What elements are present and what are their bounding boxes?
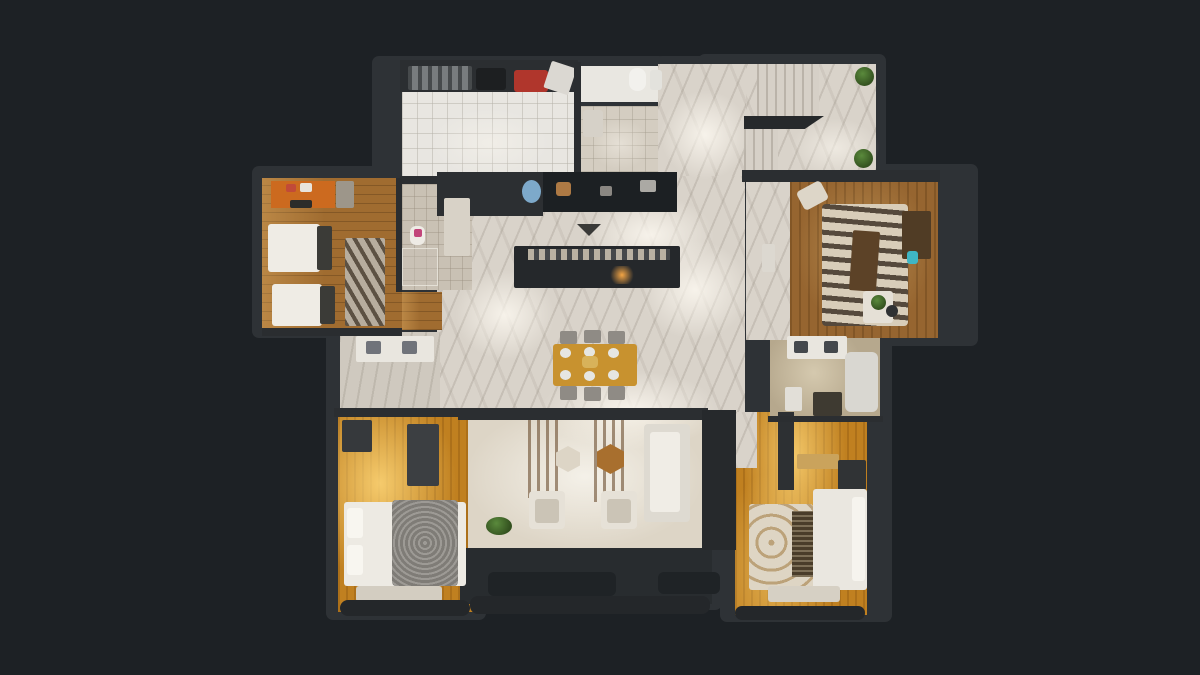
right-bath-washer — [785, 387, 802, 411]
left-bedroom-door-nook — [402, 292, 442, 330]
kitchen-kettle — [476, 68, 506, 90]
utility-washer — [583, 110, 603, 137]
fireplace-glow — [608, 266, 636, 284]
kids-desk-item-white — [300, 183, 312, 192]
study-table-plant — [871, 295, 886, 310]
right-bath-mat — [813, 392, 842, 416]
kids-bed-1-frame — [317, 226, 332, 270]
kids-crib — [336, 181, 354, 208]
left-bath-vanity — [444, 198, 470, 256]
kitchen-floor — [402, 88, 578, 178]
wall-right-bath-south — [768, 416, 883, 422]
display-reflection-warm — [556, 182, 571, 196]
kids-bed-2-frame — [320, 286, 335, 324]
armchair-1-seat — [535, 499, 559, 523]
blue-balloon — [522, 180, 541, 203]
entry-plant-upper — [855, 67, 874, 86]
dining-chair-north-1 — [560, 331, 577, 344]
right-bath-basin-1 — [794, 341, 808, 353]
media-console-decor-row — [528, 249, 670, 260]
right-bath-basin-2 — [824, 341, 838, 353]
master-pillow-2 — [347, 545, 363, 575]
right-bedroom-foot-bench — [768, 586, 840, 602]
wall-entry-south — [742, 170, 940, 182]
display-reflection-white — [640, 180, 656, 192]
armchair-2-seat — [607, 499, 631, 523]
kitchen-appliances — [408, 66, 472, 90]
dining-plate-5 — [584, 371, 595, 381]
master-scan-fuzz — [340, 600, 470, 616]
bathroom-toilet — [629, 68, 646, 91]
left-bath-shower — [402, 248, 438, 286]
terrace-furniture-1 — [488, 572, 616, 596]
bathroom-sink — [650, 70, 662, 90]
right-bedroom-cabinet — [838, 460, 866, 490]
dining-centerpiece — [582, 356, 598, 368]
study-cyan-vase — [907, 251, 918, 264]
entry-stairs-lower — [744, 128, 778, 174]
dining-chair-north-2 — [584, 330, 601, 343]
bathroom-north-floor — [580, 66, 658, 102]
master-wardrobe — [407, 424, 439, 486]
dining-chair-south-1 — [560, 386, 577, 400]
hallway-marble-north — [658, 64, 746, 178]
living-floor-plant — [486, 517, 512, 535]
right-bath-tub — [845, 352, 878, 412]
hall-radiator — [762, 244, 775, 272]
right-bedroom-partition — [778, 412, 794, 490]
kitchen-red-dishes — [514, 70, 548, 92]
dining-chair-south-2 — [584, 387, 601, 401]
wall-master-bath-south — [334, 408, 480, 417]
wall-kitchen-bath-divider — [574, 62, 581, 178]
floorplan-canvas[interactable] — [0, 0, 1200, 675]
entry-plant-lower — [854, 149, 873, 168]
master-shag-rug — [392, 500, 458, 586]
wall-great-room-south — [458, 408, 708, 420]
study-dark-stool — [886, 305, 898, 317]
left-bath-pink-accent — [414, 229, 422, 237]
entry-stairs-upper — [757, 64, 819, 120]
living-rug-streak-1 — [528, 420, 558, 498]
right-bedroom-pillows — [852, 497, 865, 581]
right-bedroom-dresser — [797, 454, 839, 469]
wall-left-bedroom-south — [262, 328, 402, 336]
sofa-cushions — [650, 432, 680, 512]
kids-desk-monitor — [290, 200, 312, 208]
terrace-scan-fuzz — [470, 596, 710, 614]
dining-plate-3 — [608, 348, 619, 358]
kids-desk-item-red — [286, 184, 296, 192]
wall-living-east — [702, 410, 736, 550]
kids-bed-2 — [272, 284, 322, 326]
dining-plate-6 — [608, 370, 619, 380]
kids-runner-rug — [345, 238, 385, 326]
right-bedroom-woven-runner — [792, 511, 815, 577]
kids-bed-1 — [268, 224, 320, 272]
terrace-furniture-2 — [658, 572, 720, 594]
dining-chair-south-3 — [608, 386, 625, 400]
right-bedroom-scan-fuzz — [735, 606, 865, 620]
master-pillow-1 — [347, 508, 363, 538]
master-bath-basin-1 — [366, 341, 381, 354]
display-reflection-gray — [600, 186, 612, 196]
right-bedroom-marble-patch — [735, 412, 757, 468]
dining-plate-1 — [560, 348, 571, 358]
master-bath-basin-2 — [402, 341, 417, 354]
study-desk — [849, 230, 880, 292]
master-storage-unit — [342, 420, 372, 452]
dining-chair-north-3 — [608, 331, 625, 344]
dining-plate-4 — [560, 370, 571, 380]
